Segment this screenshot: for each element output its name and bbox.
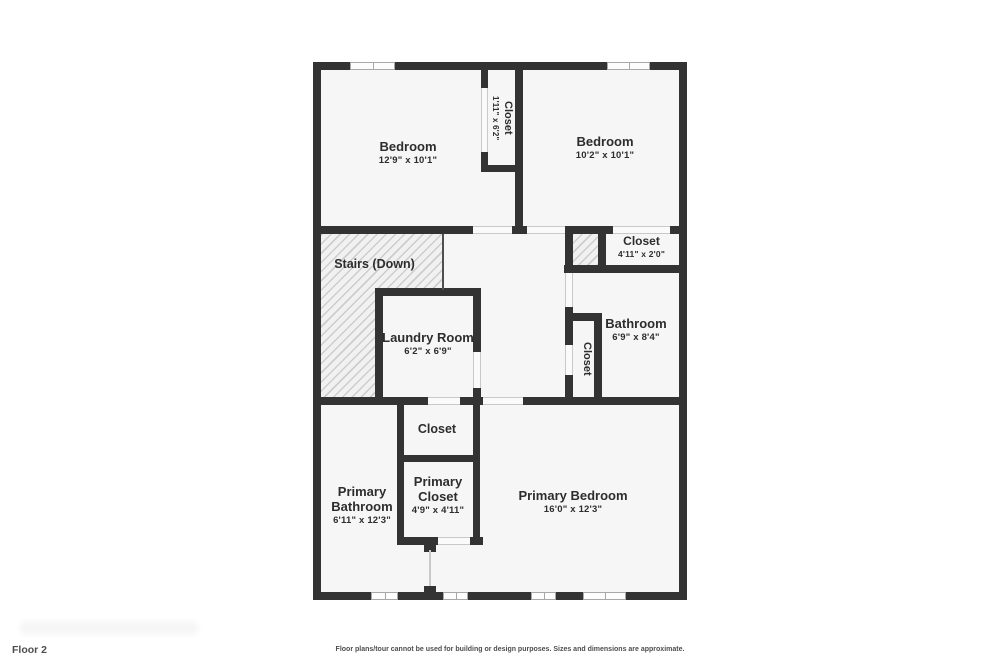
room-dims: 12'9" x 10'1" [379, 155, 437, 167]
wall [515, 70, 523, 234]
wall [481, 70, 488, 88]
window [583, 592, 626, 600]
door-opening [565, 345, 573, 375]
door-opening [565, 273, 573, 307]
room-label-primary-closet: Primary Closet 4'9" x 4'11" [398, 474, 478, 517]
room-name: Primary Bedroom [518, 488, 627, 503]
wall [473, 388, 481, 397]
door-opening [613, 226, 670, 234]
room-name: Laundry Room [382, 330, 474, 345]
room-name: Closet [501, 72, 515, 164]
room-name: Bedroom [576, 134, 633, 149]
room-label-stairs: Stairs (Down) [327, 257, 422, 272]
room-dims: 16'0" x 12'3" [544, 504, 602, 516]
wall [512, 226, 527, 234]
room-label-bedroom-2: Bedroom 10'2" x 10'1" [545, 134, 665, 162]
window [607, 62, 650, 70]
wall [670, 226, 679, 234]
room-dims: 4'11" x 2'0" [618, 249, 665, 260]
door-opening [527, 226, 565, 234]
room-name: Closet [580, 321, 594, 397]
room-name: Closet [418, 422, 456, 437]
floor-label: Floor 2 [12, 644, 47, 656]
door-opening [483, 397, 523, 405]
room-label-primary-bedroom: Primary Bedroom 16'0" x 12'3" [491, 488, 655, 516]
room-label-bedroom-1-closet: Closet 1'11" x 6'2" [488, 72, 515, 164]
room-dims: 4'9" x 4'11" [412, 505, 464, 517]
stairs-edge-line [442, 234, 444, 290]
wall [424, 586, 436, 596]
wall [375, 288, 481, 296]
room-label-bedroom-1: Bedroom 12'9" x 10'1" [343, 139, 473, 167]
wall [321, 397, 428, 405]
wall [397, 455, 480, 462]
room-name: Primary Closet [398, 474, 478, 504]
door-opening [481, 88, 488, 152]
wall [565, 375, 573, 397]
door-opening [428, 397, 460, 405]
room-dims: 6'2" x 6'9" [404, 346, 451, 358]
window [371, 592, 398, 600]
wall [460, 397, 483, 405]
room-dims: 6'9" x 8'4" [612, 332, 659, 344]
room-label-linen-closet: Closet [573, 321, 594, 397]
room-dims: 6'11" x 12'3" [333, 515, 391, 527]
room-dims: 1'11" x 6'2" [489, 72, 501, 164]
room-dims: 10'2" x 10'1" [576, 150, 634, 162]
room-name: Bathroom [605, 316, 666, 331]
room-label-bedroom-2-closet: Closet 4'11" x 2'0" [604, 234, 679, 260]
watermark-smudge [20, 621, 198, 635]
room-name: Primary Bathroom [315, 484, 409, 514]
wall [470, 537, 483, 545]
floor-plan: Bedroom 12'9" x 10'1" Closet 1'11" x 6'2… [313, 62, 687, 600]
wall [397, 537, 438, 545]
room-label-hallway-closet: Closet [398, 422, 476, 437]
room-name: Stairs (Down) [334, 257, 415, 272]
window [350, 62, 395, 70]
floor-plan-page: Bedroom 12'9" x 10'1" Closet 1'11" x 6'2… [0, 0, 1000, 667]
room-name: Closet [623, 234, 660, 248]
window [531, 592, 556, 600]
wall [313, 592, 687, 600]
disclaimer-text: Floor plans/tour cannot be used for buil… [305, 646, 715, 653]
chimney-hatch [572, 234, 598, 265]
window [443, 592, 468, 600]
wall [321, 226, 473, 234]
wall [523, 397, 679, 405]
door-line [429, 550, 431, 588]
room-name: Bedroom [379, 139, 436, 154]
door-opening [438, 537, 470, 545]
room-label-bathroom: Bathroom 6'9" x 8'4" [591, 316, 681, 344]
room-label-laundry-room: Laundry Room 6'2" x 6'9" [368, 330, 488, 358]
door-opening [473, 226, 512, 234]
room-label-primary-bathroom: Primary Bathroom 6'11" x 12'3" [315, 484, 409, 527]
wall [564, 265, 679, 273]
